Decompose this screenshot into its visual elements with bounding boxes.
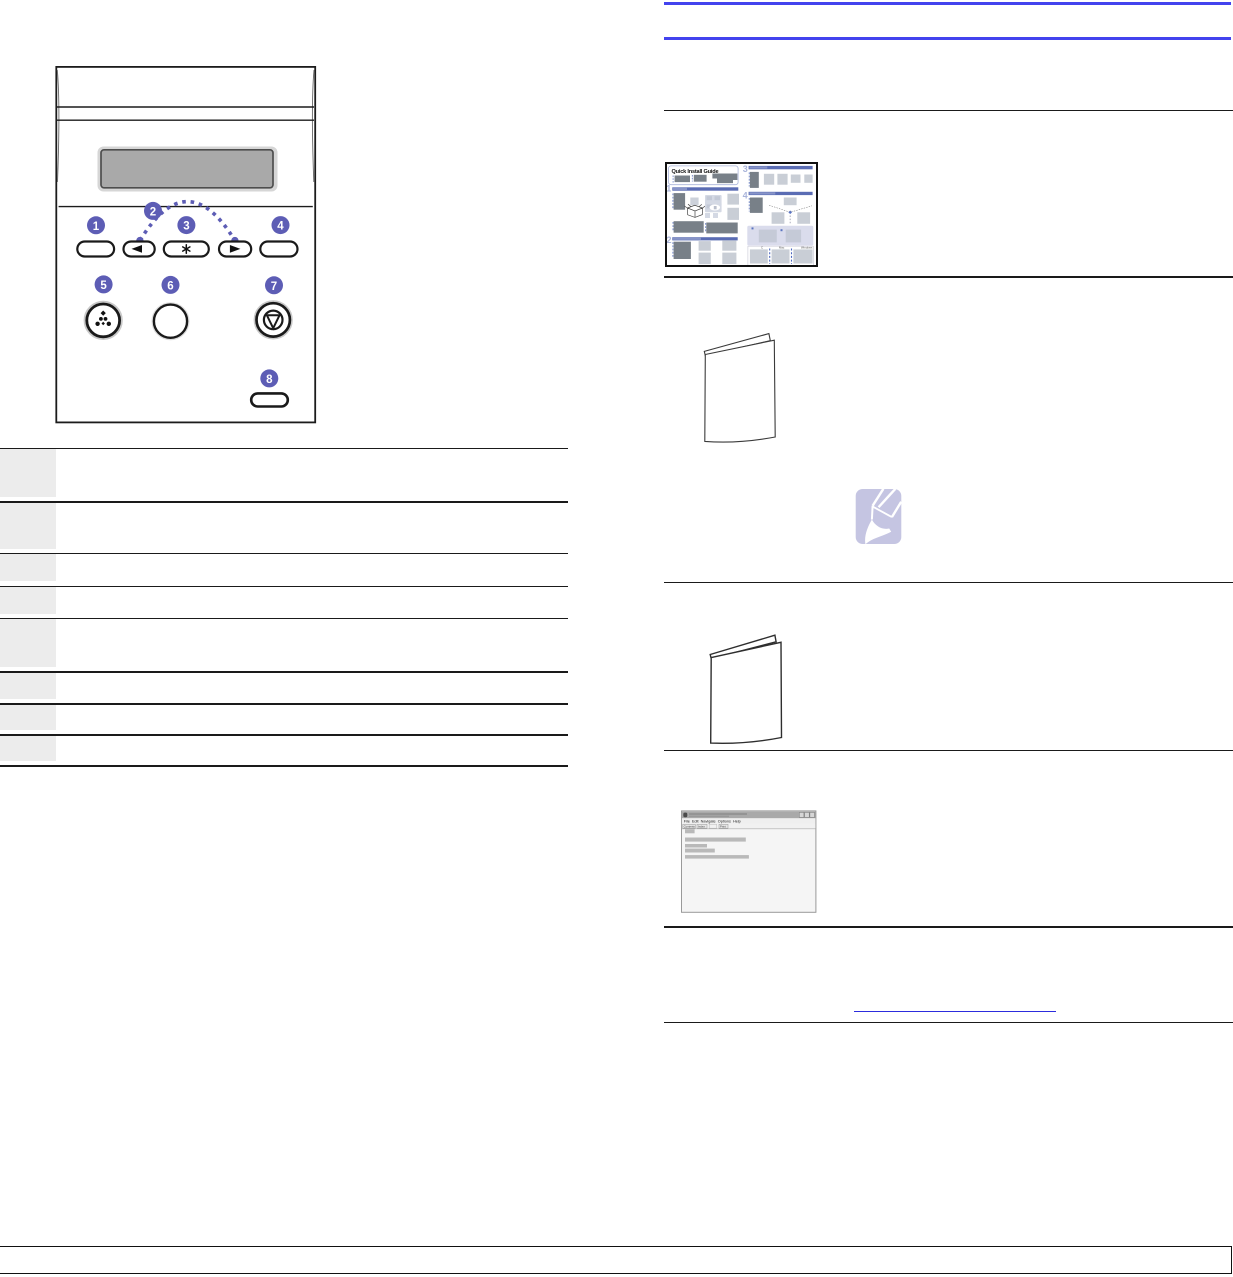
svg-text:Windows: Windows: [801, 245, 813, 249]
svg-text:File Edit Navigate Options: File Edit Navigate Options Help: [684, 820, 741, 824]
svg-text:5: 5: [100, 280, 107, 292]
svg-text:3: 3: [183, 221, 189, 233]
svg-text:2: 2: [150, 206, 156, 218]
svg-text:8: 8: [266, 374, 273, 386]
svg-text:6: 6: [167, 280, 173, 292]
svg-text:4: 4: [743, 191, 748, 201]
svg-text:Index: Index: [698, 824, 705, 828]
svg-text:3: 3: [743, 164, 748, 174]
svg-text:Quick Install Guide: Quick Install Guide: [672, 169, 719, 175]
svg-text:Print: Print: [720, 824, 726, 828]
svg-text:Contents: Contents: [684, 824, 696, 828]
svg-text:4: 4: [277, 221, 284, 233]
svg-text:C: C: [761, 245, 763, 249]
svg-text:1: 1: [93, 221, 100, 233]
svg-text:2: 2: [667, 235, 672, 245]
svg-text:7: 7: [271, 281, 277, 293]
svg-text:Mac: Mac: [779, 245, 785, 249]
